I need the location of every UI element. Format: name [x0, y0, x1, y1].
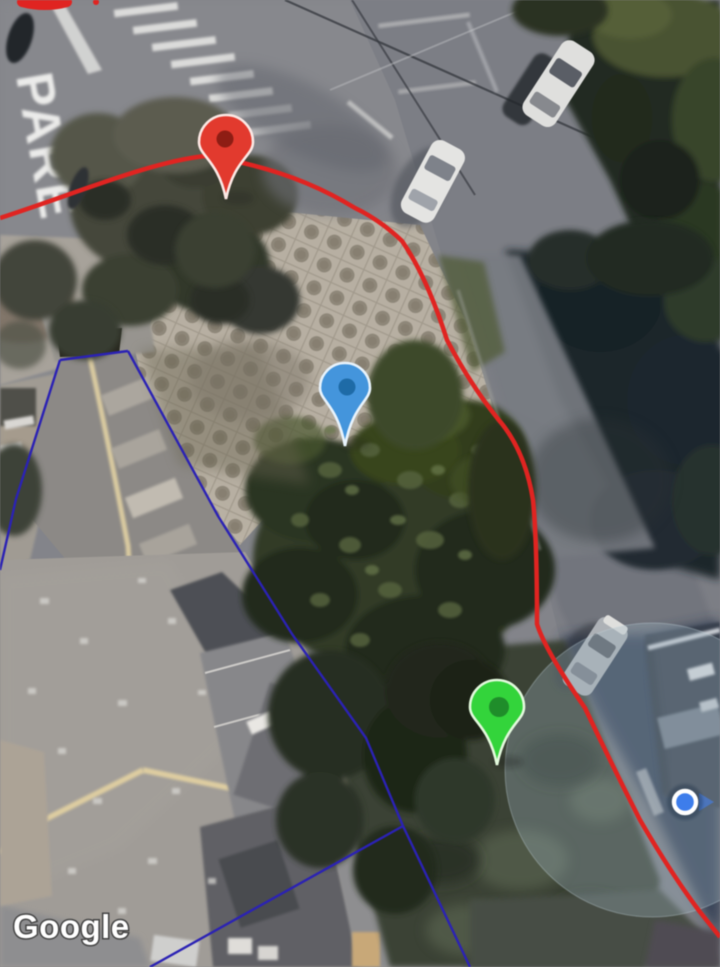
svg-text:Google: Google — [13, 908, 130, 945]
